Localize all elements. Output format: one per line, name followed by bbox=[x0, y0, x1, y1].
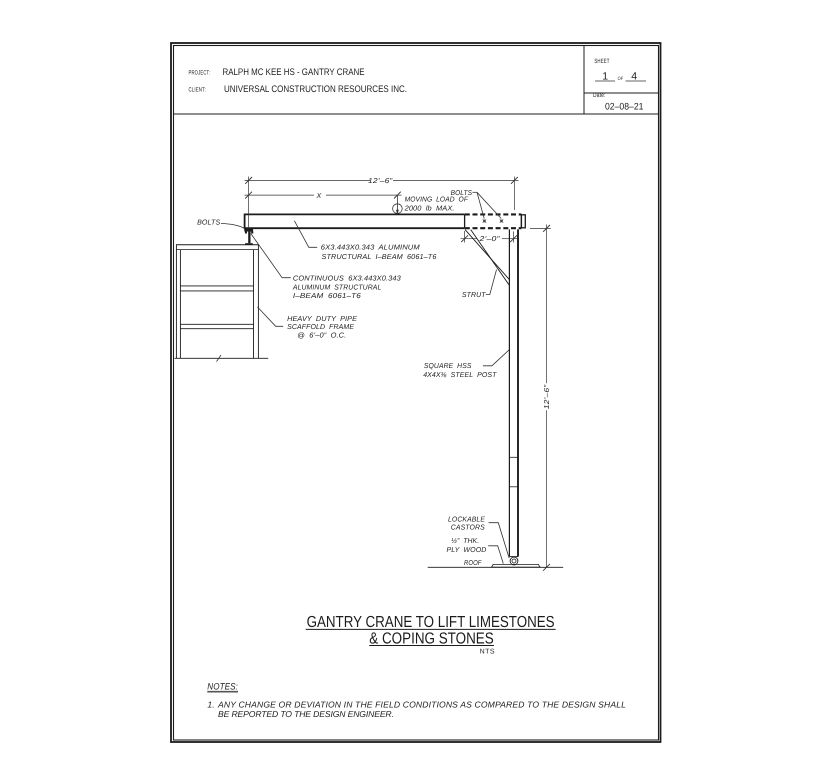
svg-text:2000 lb MAX.: 2000 lb MAX. bbox=[404, 205, 455, 213]
svg-text:ROOF: ROOF bbox=[464, 559, 482, 567]
svg-text:STRUT: STRUT bbox=[462, 291, 486, 299]
svg-text:UNIVERSAL CONSTRUCTION RESOURC: UNIVERSAL CONSTRUCTION RESOURCES INC. bbox=[224, 84, 407, 95]
svg-text:SCAFFOLD FRAME: SCAFFOLD FRAME bbox=[287, 323, 354, 331]
svg-text:I–BEAM 6061–T6: I–BEAM 6061–T6 bbox=[293, 292, 361, 300]
svg-text:RALPH MC KEE HS - GANTRY CRANE: RALPH MC KEE HS - GANTRY CRANE bbox=[223, 67, 365, 78]
svg-text:BOLTS: BOLTS bbox=[197, 219, 220, 227]
svg-text:02–08–21: 02–08–21 bbox=[605, 101, 644, 112]
svg-text:12’–6”: 12’–6” bbox=[368, 177, 393, 185]
svg-text:BE REPORTED TO THE DESIGN ENGI: BE REPORTED TO THE DESIGN ENGINEER. bbox=[218, 709, 394, 719]
svg-text:2’–0”: 2’–0” bbox=[478, 235, 500, 243]
svg-text:½” THK.: ½” THK. bbox=[451, 537, 479, 545]
svg-text:X: X bbox=[316, 192, 322, 200]
svg-text:& COPING STONES: & COPING STONES bbox=[369, 630, 494, 647]
svg-text:SHEET: SHEET bbox=[594, 58, 609, 65]
svg-text:12’–6”: 12’–6” bbox=[543, 384, 551, 409]
svg-text:4X4X⅜ STEEL POST: 4X4X⅜ STEEL POST bbox=[423, 371, 497, 379]
svg-text:HEAVY DUTY PIPE: HEAVY DUTY PIPE bbox=[287, 315, 357, 323]
svg-text:Date:: Date: bbox=[593, 92, 606, 99]
svg-text:STRUCTURAL I–BEAM 6061–T6: STRUCTURAL I–BEAM 6061–T6 bbox=[322, 253, 437, 261]
svg-text:6X3.443X0.343 ALUMINUM: 6X3.443X0.343 ALUMINUM bbox=[321, 244, 420, 252]
svg-text:GANTRY CRANE TO LIFT LIMESTONE: GANTRY CRANE TO LIFT LIMESTONES bbox=[307, 614, 555, 631]
svg-text:SQUARE HSS: SQUARE HSS bbox=[424, 362, 472, 370]
svg-text:ANY CHANGE OR DEVIATION IN THE: ANY CHANGE OR DEVIATION IN THE FIELD CON… bbox=[217, 699, 626, 709]
svg-text:LOCKABLE: LOCKABLE bbox=[448, 516, 485, 524]
svg-text:MOVING LOAD OF: MOVING LOAD OF bbox=[405, 196, 469, 204]
svg-text:CONTINUOUS 6X3.443X0.343: CONTINUOUS 6X3.443X0.343 bbox=[293, 274, 401, 282]
svg-text:PROJECT:: PROJECT: bbox=[189, 70, 211, 77]
svg-text:@ 6’–0” O.C.: @ 6’–0” O.C. bbox=[297, 332, 346, 340]
svg-text:OF: OF bbox=[618, 76, 624, 82]
svg-text:NOTES:: NOTES: bbox=[207, 681, 238, 691]
svg-text:1.: 1. bbox=[207, 699, 214, 709]
svg-text:PLY WOOD: PLY WOOD bbox=[447, 546, 487, 554]
svg-text:ALUMINUM STRUCTURAL: ALUMINUM STRUCTURAL bbox=[292, 284, 381, 292]
svg-text:NTS: NTS bbox=[480, 648, 496, 655]
svg-text:CASTORS: CASTORS bbox=[451, 524, 485, 532]
svg-text:CLIENT:: CLIENT: bbox=[189, 87, 206, 94]
